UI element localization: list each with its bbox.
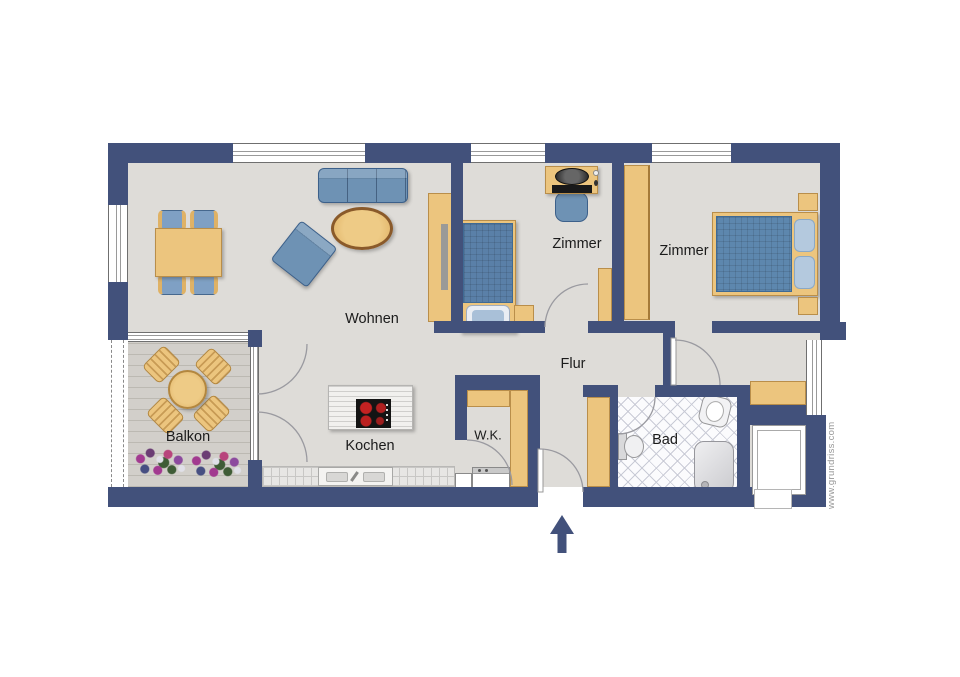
wall [820, 143, 840, 340]
watermark: www.grundriss.com [826, 417, 841, 509]
bed-double [712, 212, 818, 296]
wardrobe-large [624, 165, 650, 320]
wall [712, 321, 822, 333]
balcony-door [250, 347, 259, 460]
wall [248, 460, 262, 487]
room-label-balcony: Balkon [166, 430, 210, 445]
shaft-opening [754, 489, 792, 509]
wall [663, 333, 675, 392]
sink-basin [326, 472, 348, 482]
nightstand [798, 193, 818, 211]
room-label-bathroom: Bad [652, 433, 678, 448]
wall [365, 143, 471, 163]
balcony-window-front [128, 332, 248, 342]
sink-bowl [704, 399, 727, 424]
wall [108, 282, 128, 340]
desk-lamp [593, 170, 599, 176]
desk-keyboard [552, 185, 592, 193]
desk [545, 166, 598, 194]
sideboard [750, 381, 806, 405]
bed-duvet [716, 216, 792, 292]
desk-chair [555, 192, 588, 222]
wall [737, 385, 750, 487]
closet-shelf [510, 390, 528, 487]
sink-basin [363, 472, 385, 482]
desk-monitor [555, 168, 589, 185]
room-label-living: Wohnen [345, 312, 399, 327]
dining-chair [158, 274, 186, 295]
room-label-closet: W.K. [474, 429, 501, 442]
wall [545, 143, 652, 163]
dining-chair [190, 274, 218, 295]
flower-box [134, 446, 188, 478]
wall [528, 390, 540, 487]
sofa [318, 168, 408, 203]
cabinet-shelf-detail [441, 224, 448, 290]
bed-single [460, 220, 516, 333]
wall [655, 385, 737, 397]
cooktop [356, 399, 391, 428]
window [108, 205, 128, 282]
hall-closet [587, 397, 610, 487]
room-label-hallway: Flur [561, 357, 586, 372]
shower [694, 441, 734, 493]
room-label-bedroom2: Zimmer [659, 244, 708, 259]
living-cabinet [428, 193, 453, 322]
window [806, 340, 822, 415]
wall [588, 321, 675, 333]
toilet [624, 435, 644, 458]
kitchen-sink [318, 467, 393, 486]
sink-faucet [350, 471, 359, 482]
closet-shelf [467, 390, 510, 407]
coffee-table [331, 207, 393, 250]
desk-mouse [594, 180, 598, 186]
dining-table [155, 228, 222, 277]
kitchen-island [328, 385, 413, 430]
washer-knob [478, 469, 481, 472]
wall [612, 163, 624, 333]
wall [610, 397, 618, 487]
bed-pillow [794, 256, 815, 289]
wall [806, 415, 826, 507]
wall [108, 487, 538, 507]
room-label-kitchen: Kochen [345, 439, 394, 454]
bed-pillow [794, 219, 815, 252]
wall [434, 321, 545, 333]
bed-duvet [463, 223, 513, 303]
wall [820, 322, 846, 340]
wall [108, 143, 128, 205]
balcony-railing [111, 340, 124, 487]
wall [583, 385, 618, 397]
nightstand [798, 297, 818, 315]
shaft [752, 425, 806, 495]
wall [455, 390, 467, 440]
window [471, 143, 545, 163]
window [233, 143, 365, 163]
balcony-table [168, 370, 207, 409]
window [652, 143, 731, 163]
room-label-bedroom1: Zimmer [552, 237, 601, 252]
flower-box [190, 448, 244, 480]
washer-knob [485, 469, 488, 472]
wall [248, 330, 262, 347]
entrance-arrow-icon [550, 515, 574, 553]
cooktop-knobs [386, 404, 388, 406]
wall [455, 375, 540, 390]
wardrobe-small [598, 268, 612, 323]
floor-plan: Wohnen Zimmer Zimmer Flur Kochen W.K. Ba… [0, 0, 960, 677]
wall [451, 163, 463, 333]
